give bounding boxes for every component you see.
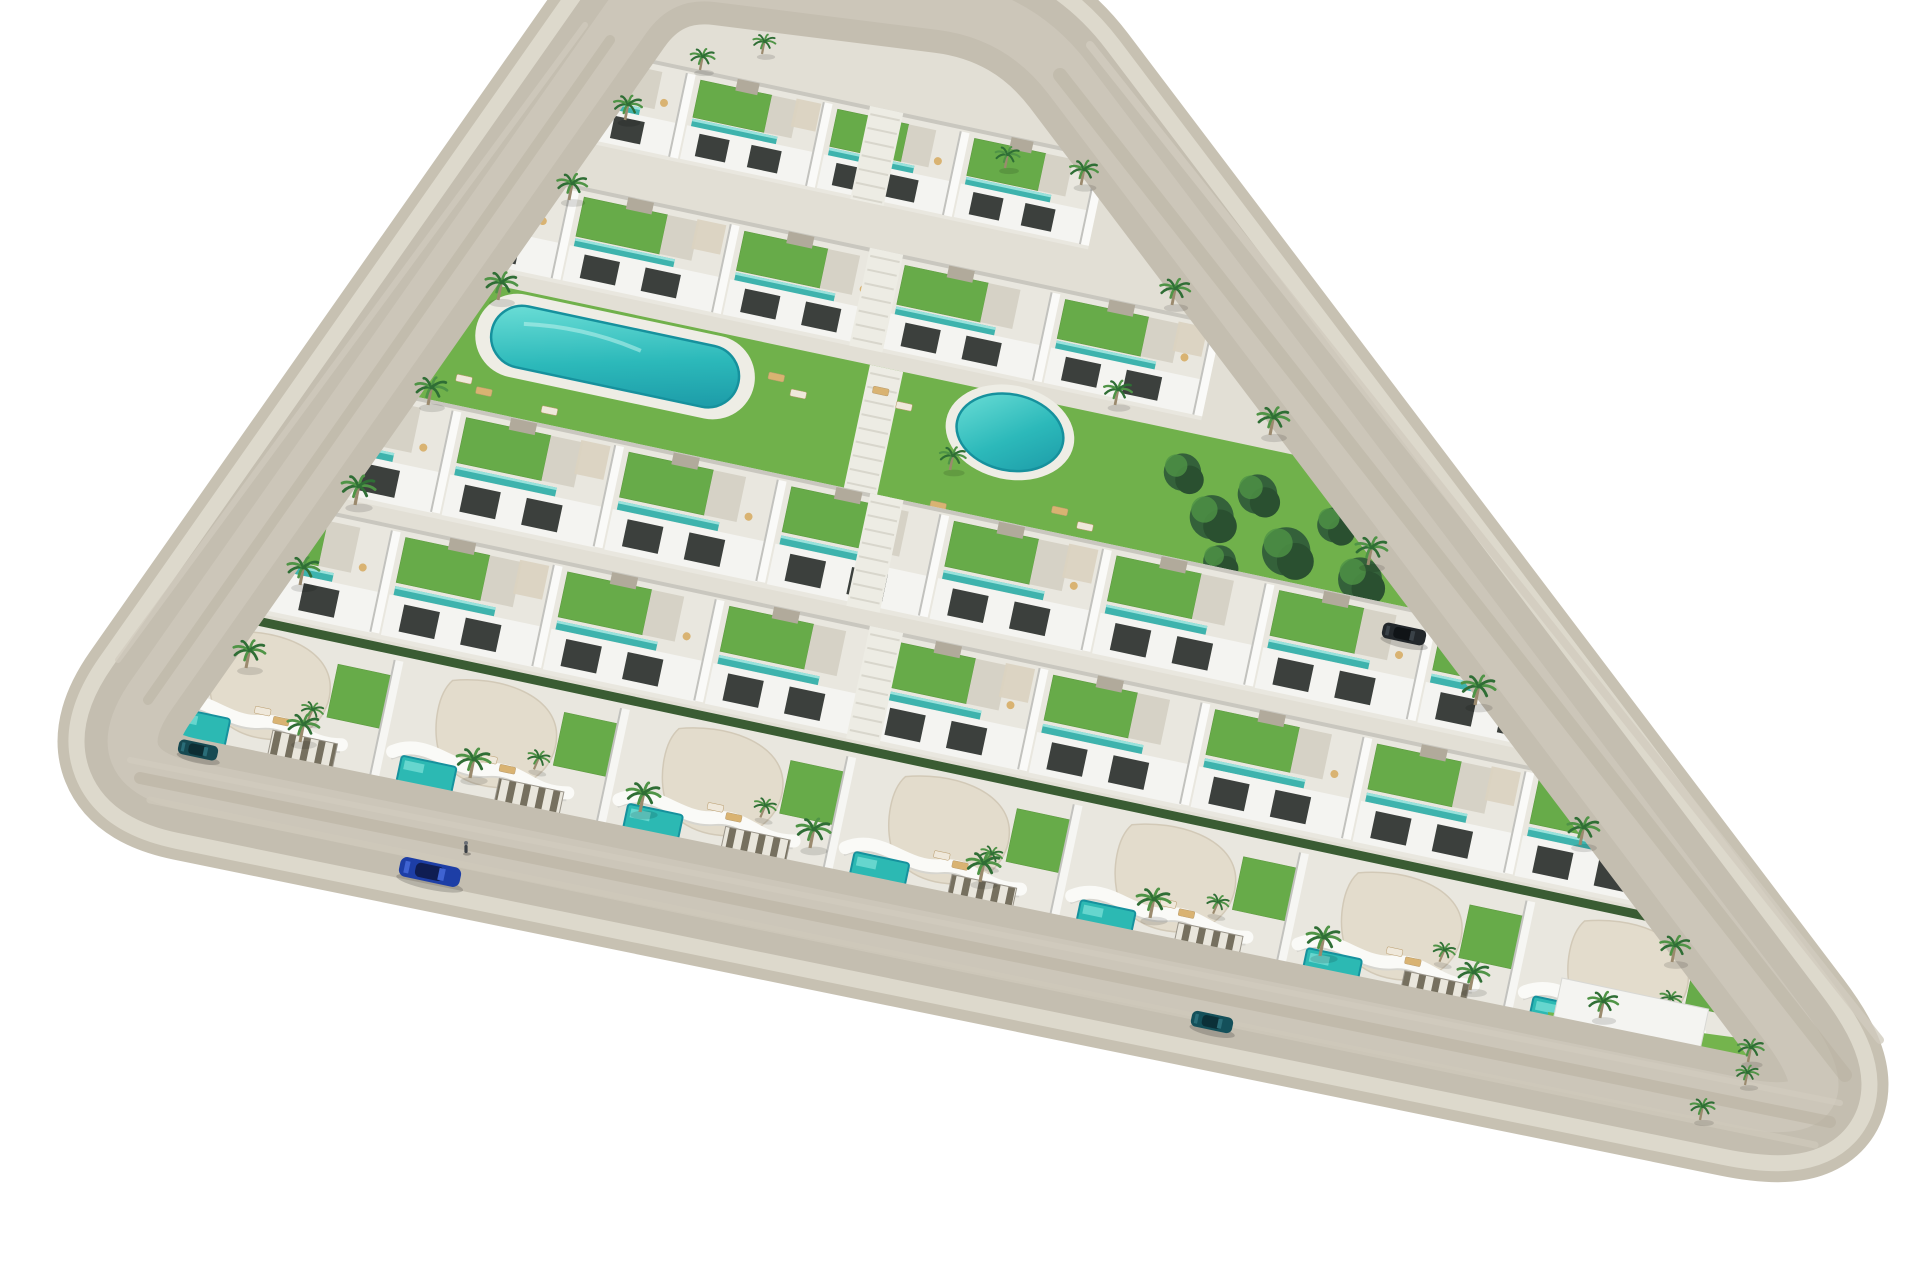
palm-crown	[429, 385, 433, 389]
palm-crown	[1173, 286, 1177, 290]
palm-crown	[701, 55, 704, 58]
palm-crown	[951, 454, 954, 457]
palm-crown	[356, 484, 360, 488]
palm-crown	[981, 861, 985, 865]
palm-crown	[1701, 1105, 1704, 1108]
palm-shadow	[1461, 989, 1487, 997]
palm-crown	[1116, 388, 1120, 392]
palm-shadow	[460, 777, 487, 786]
palm-shadow	[757, 54, 775, 60]
aerial-site-render	[0, 0, 1920, 1280]
palm-crown	[1082, 168, 1086, 172]
palm-shadow	[1140, 917, 1167, 926]
palm-crown	[1673, 943, 1677, 947]
palm-shadow	[999, 168, 1019, 174]
palm-shadow	[419, 404, 445, 412]
palm-shadow	[1108, 404, 1131, 411]
palm-crown	[301, 722, 305, 726]
palm-shadow	[237, 667, 263, 675]
palm-crown	[1476, 684, 1480, 688]
palm-shadow	[561, 199, 585, 207]
pergola	[691, 219, 726, 254]
palm-shadow	[1694, 1120, 1714, 1126]
palm-shadow	[291, 584, 317, 592]
palm-shadow	[1310, 955, 1337, 964]
palm-crown	[1271, 415, 1275, 419]
palm-crown	[570, 181, 574, 185]
pedestrian-head	[464, 841, 468, 845]
palm-shadow	[618, 119, 641, 126]
palm-shadow	[1740, 1085, 1758, 1091]
palm-shadow	[345, 504, 372, 513]
palm-shadow	[800, 847, 827, 856]
palm-shadow	[1664, 961, 1688, 969]
palm-crown	[1746, 1071, 1749, 1074]
palm-crown	[301, 565, 305, 569]
palm-crown	[1471, 970, 1475, 974]
palm-shadow	[943, 470, 964, 477]
render-canvas	[0, 0, 1920, 1280]
palm-crown	[641, 791, 645, 795]
palm-crown	[1369, 545, 1373, 549]
palm-crown	[1151, 897, 1155, 901]
palm-shadow	[1074, 184, 1097, 191]
palm-crown	[626, 103, 630, 107]
pedestrian-shadow	[463, 852, 471, 855]
palm-crown	[1321, 935, 1325, 939]
palm-crown	[763, 40, 766, 43]
tip-hedge	[1553, 1186, 1663, 1225]
palm-crown	[471, 757, 475, 761]
palm-shadow	[1465, 704, 1492, 713]
tip-hedge	[1671, 1206, 1757, 1251]
palm-crown	[811, 827, 815, 831]
palm-shadow	[489, 299, 515, 307]
palm-crown	[1581, 825, 1585, 829]
palm-shadow	[1592, 1017, 1616, 1025]
palm-crown	[247, 648, 251, 652]
palm-shadow	[1261, 434, 1287, 442]
palm-shadow	[1359, 564, 1385, 572]
palm-crown	[1749, 1046, 1752, 1049]
palm-shadow	[630, 811, 657, 820]
palm-crown	[1006, 153, 1009, 156]
palm-shadow	[970, 881, 997, 890]
palm-shadow	[694, 70, 714, 76]
pedestrian-body	[464, 845, 467, 853]
palm-shadow	[291, 741, 317, 749]
palm-crown	[499, 280, 503, 284]
palm-shadow	[1571, 844, 1597, 852]
palm-crown	[1601, 999, 1605, 1003]
palm-shadow	[1164, 304, 1188, 312]
